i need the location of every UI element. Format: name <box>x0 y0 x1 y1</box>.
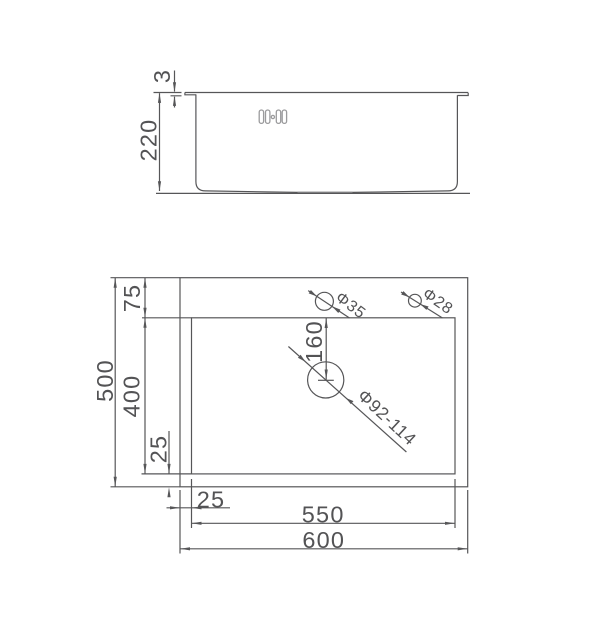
svg-text:550: 550 <box>302 502 345 528</box>
svg-text:600: 600 <box>302 527 345 553</box>
svg-text:220: 220 <box>136 119 162 162</box>
svg-text:400: 400 <box>119 375 145 418</box>
svg-text:500: 500 <box>92 359 118 402</box>
svg-text:25: 25 <box>197 486 226 512</box>
svg-text:75: 75 <box>119 284 145 313</box>
svg-text:160: 160 <box>301 320 327 363</box>
svg-text:3: 3 <box>149 69 175 83</box>
svg-text:25: 25 <box>146 435 172 464</box>
svg-text:Φ92-114: Φ92-114 <box>354 385 421 449</box>
svg-text:Φ28: Φ28 <box>419 285 456 318</box>
